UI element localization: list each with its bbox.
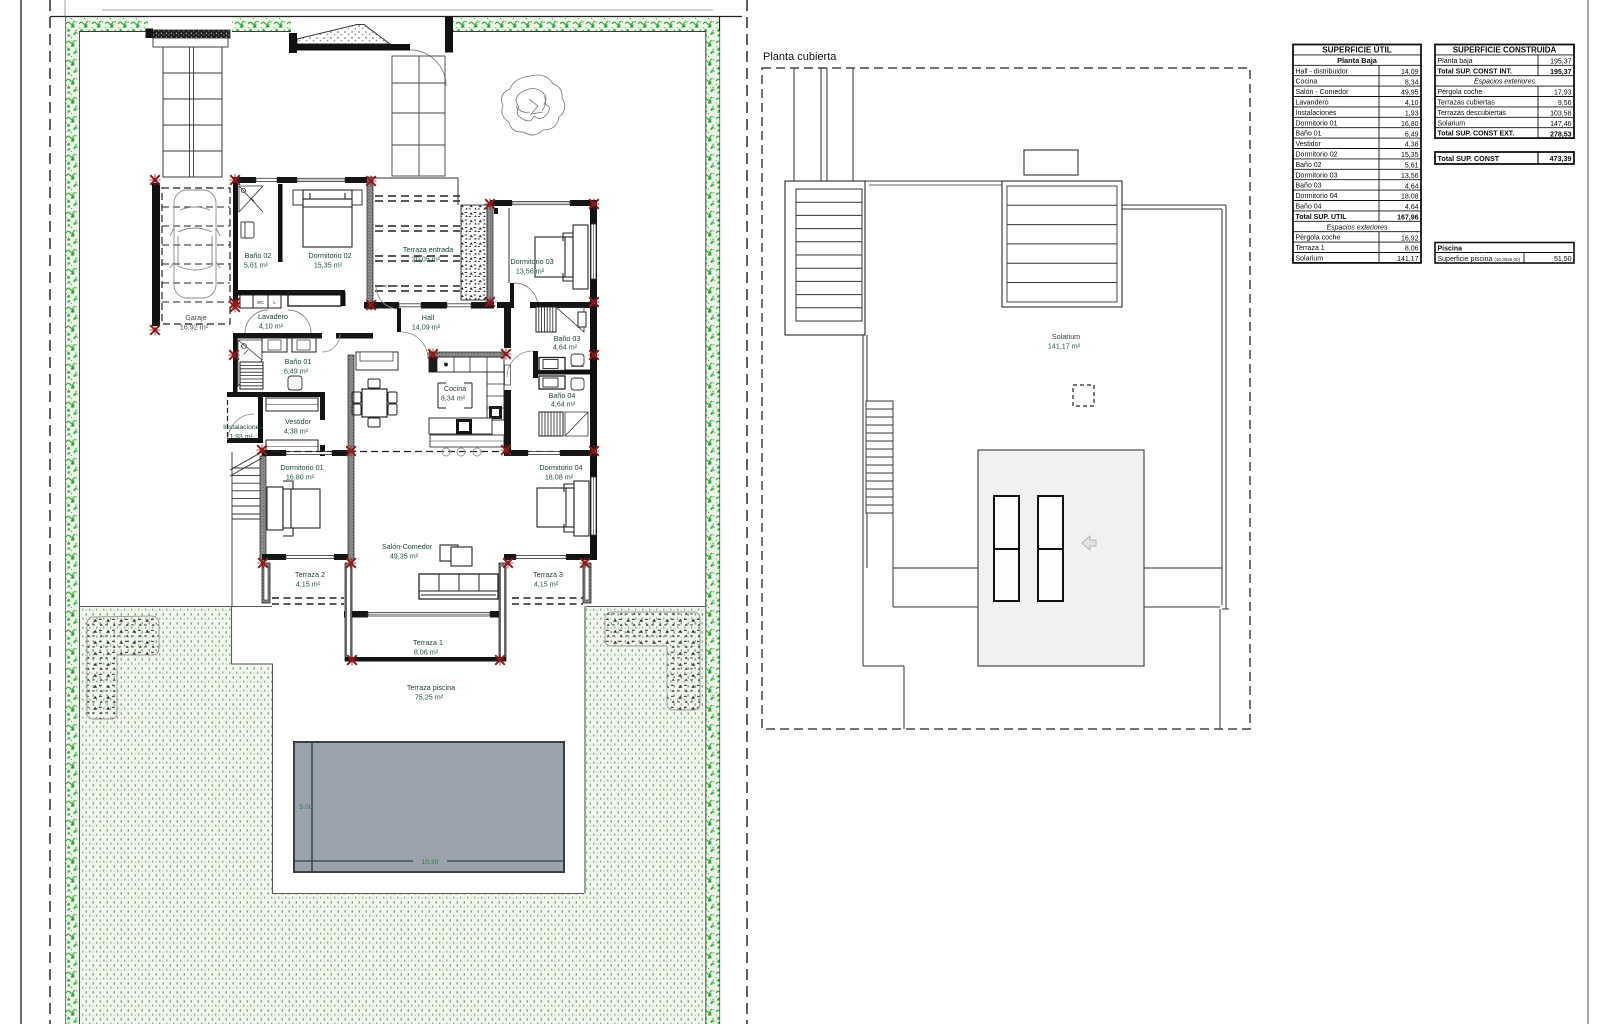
svg-text:Dormitorio 04: Dormitorio 04 (1296, 193, 1338, 200)
svg-text:Planta Baja: Planta Baja (1337, 56, 1378, 65)
svg-text:Terraza piscina: Terraza piscina (407, 683, 455, 692)
svg-text:15,35 m²: 15,35 m² (314, 261, 343, 270)
svg-text:Instalaciones: Instalaciones (223, 424, 263, 431)
svg-text:Dormitorio 03: Dormitorio 03 (1296, 172, 1338, 179)
svg-text:5.00: 5.00 (299, 804, 312, 811)
svg-text:4,15 m²: 4,15 m² (534, 580, 559, 589)
svg-text:Total SUP. CONST: Total SUP. CONST (1438, 154, 1500, 163)
svg-text:Baño 01: Baño 01 (285, 357, 312, 366)
svg-text:4,64 m²: 4,64 m² (553, 343, 578, 352)
svg-text:18,08: 18,08 (1401, 194, 1419, 201)
svg-text:10.30: 10.30 (421, 859, 438, 866)
svg-text:Baño 01: Baño 01 (1296, 131, 1322, 138)
svg-text:4,38 m²: 4,38 m² (284, 427, 309, 436)
svg-text:Salón-Comedor: Salón-Comedor (382, 542, 433, 551)
svg-text:6,49 m²: 6,49 m² (284, 367, 309, 376)
svg-text:Hall - distribuidor: Hall - distribuidor (1296, 68, 1349, 75)
svg-text:Terrazas cubiertas: Terrazas cubiertas (1438, 100, 1496, 107)
svg-text:Espacios exteriores: Espacios exteriores (1326, 224, 1388, 231)
svg-text:Salón - Comedor: Salón - Comedor (1296, 89, 1350, 96)
svg-text:Solarium: Solarium (1296, 256, 1324, 263)
svg-text:Dormitorio 02: Dormitorio 02 (1296, 152, 1338, 159)
svg-text:Dormitorio 03: Dormitorio 03 (510, 257, 553, 266)
svg-text:Lavandero: Lavandero (1296, 100, 1329, 107)
svg-text:4,38: 4,38 (1405, 142, 1419, 149)
svg-text:Cocina: Cocina (444, 384, 466, 393)
svg-text:4,64: 4,64 (1405, 204, 1419, 211)
svg-text:16,80 m²: 16,80 m² (286, 473, 315, 482)
svg-text:Espacios exteriores: Espacios exteriores (1474, 79, 1536, 86)
svg-text:Pérgola coche: Pérgola coche (1438, 89, 1483, 96)
svg-text:Vestidor: Vestidor (1296, 141, 1322, 148)
svg-text:5,61: 5,61 (1405, 163, 1419, 170)
svg-text:4,64: 4,64 (1405, 183, 1419, 190)
svg-text:Terraza 2: Terraza 2 (295, 570, 325, 579)
svg-text:195,37: 195,37 (1550, 59, 1572, 66)
svg-text:5,61 m²: 5,61 m² (244, 261, 269, 270)
svg-text:16,80: 16,80 (1401, 121, 1419, 128)
svg-text:Terraza 1: Terraza 1 (1296, 245, 1325, 252)
svg-text:8,06 m²: 8,06 m² (414, 648, 439, 657)
svg-text:Solarium: Solarium (1052, 332, 1080, 341)
svg-text:4,10: 4,10 (1405, 100, 1419, 107)
svg-text:9,56: 9,56 (1558, 100, 1572, 107)
svg-text:473,39: 473,39 (1550, 154, 1572, 163)
svg-text:17,93: 17,93 (1554, 90, 1572, 97)
svg-text:Baño 04: Baño 04 (1296, 204, 1322, 211)
svg-text:8,34: 8,34 (1405, 79, 1419, 86)
svg-text:75,25 m²: 75,25 m² (415, 693, 444, 702)
svg-text:Terraza entrada: Terraza entrada (403, 245, 453, 254)
svg-text:8,06: 8,06 (1405, 246, 1419, 253)
svg-text:Planta cubierta: Planta cubierta (763, 51, 837, 63)
svg-text:141,17 m²: 141,17 m² (1048, 342, 1081, 351)
svg-text:4,15 m²: 4,15 m² (296, 580, 321, 589)
svg-text:49,95: 49,95 (1401, 90, 1419, 97)
svg-text:Vestidor: Vestidor (285, 417, 312, 426)
svg-text:Dormitorio 01: Dormitorio 01 (280, 463, 323, 472)
svg-text:Superficie piscina (10,30x5,00: Superficie piscina (10,30x5,00) (1438, 256, 1521, 263)
svg-text:Baño 02: Baño 02 (245, 251, 272, 260)
svg-text:SUPERFICIE CONSTRUIDA: SUPERFICIE CONSTRUIDA (1453, 46, 1557, 55)
svg-text:Planta baja: Planta baja (1438, 58, 1473, 65)
svg-text:13,56 m²: 13,56 m² (516, 267, 545, 276)
svg-text:WC: WC (257, 300, 264, 305)
svg-text:Solarium: Solarium (1438, 120, 1466, 127)
svg-text:51,50: 51,50 (1554, 256, 1572, 263)
svg-text:4,64 m²: 4,64 m² (551, 400, 576, 409)
svg-text:14,09: 14,09 (1401, 69, 1419, 76)
svg-text:Total SUP. CONST EXT.: Total SUP. CONST EXT. (1438, 131, 1515, 138)
svg-text:Baño 02: Baño 02 (1296, 162, 1322, 169)
svg-text:6,49: 6,49 (1405, 131, 1419, 138)
svg-text:Piscina: Piscina (1438, 246, 1463, 253)
svg-text:Pérgola coche: Pérgola coche (1296, 235, 1341, 242)
svg-text:14,09 m²: 14,09 m² (412, 323, 441, 332)
svg-text:1,93 m²: 1,93 m² (229, 434, 253, 441)
svg-text:49,35 m²: 49,35 m² (390, 552, 419, 561)
svg-text:16,92 m²: 16,92 m² (180, 323, 209, 332)
svg-text:4,10 m²: 4,10 m² (259, 322, 284, 331)
svg-text:Dormitorio 01: Dormitorio 01 (1296, 120, 1338, 127)
svg-text:Terraza 1: Terraza 1 (413, 638, 443, 647)
svg-text:Terraza 3: Terraza 3 (533, 570, 563, 579)
svg-text:Total SUP. UTIL: Total SUP. UTIL (1296, 214, 1348, 221)
svg-text:Hall: Hall (422, 313, 435, 322)
svg-text:Baño 03: Baño 03 (1296, 183, 1322, 190)
svg-text:1,93: 1,93 (1405, 111, 1419, 118)
svg-text:Dormitorio 04: Dormitorio 04 (539, 463, 582, 472)
svg-text:13,56: 13,56 (1401, 173, 1419, 180)
svg-text:18,08 m²: 18,08 m² (545, 473, 574, 482)
svg-text:167,96: 167,96 (1397, 215, 1419, 222)
svg-text:Lavadero: Lavadero (258, 312, 288, 321)
svg-text:Cocina: Cocina (1296, 79, 1318, 86)
svg-text:20,05 m²: 20,05 m² (412, 255, 441, 264)
svg-text:8,34 m²: 8,34 m² (441, 394, 466, 403)
svg-text:Instalaciones: Instalaciones (1296, 110, 1337, 117)
svg-text:195,37: 195,37 (1550, 69, 1572, 76)
svg-text:Terrazas descubiertas: Terrazas descubiertas (1438, 110, 1507, 117)
svg-text:147,46: 147,46 (1550, 121, 1572, 128)
svg-text:15,35: 15,35 (1401, 152, 1419, 159)
svg-text:16,92: 16,92 (1401, 235, 1419, 242)
svg-text:Garaje: Garaje (185, 313, 207, 322)
svg-text:103,58: 103,58 (1550, 111, 1572, 118)
svg-text:Dormitorio 02: Dormitorio 02 (308, 251, 351, 260)
svg-text:Total SUP. CONST INT.: Total SUP. CONST INT. (1438, 68, 1512, 75)
